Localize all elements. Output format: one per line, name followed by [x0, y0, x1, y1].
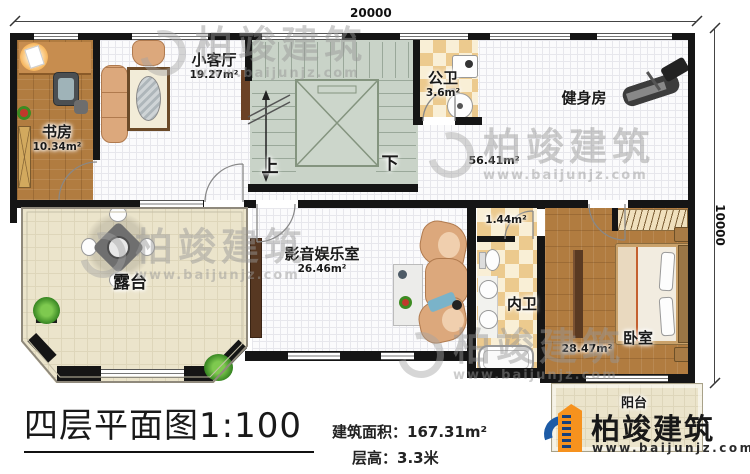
stair-flight-top — [252, 42, 416, 78]
stairs-up-text: 上 — [262, 157, 279, 177]
faucet-dot — [465, 60, 473, 68]
room-area: 3.6m² — [416, 87, 470, 99]
tv-cabinet — [250, 238, 262, 338]
window — [288, 352, 340, 360]
desk-chair — [74, 100, 88, 114]
toilet — [485, 249, 500, 271]
window — [381, 352, 414, 360]
living-sofa — [101, 65, 128, 143]
room-area: 10.34m² — [24, 141, 90, 153]
wall — [10, 33, 17, 223]
wall — [245, 351, 469, 361]
room-label-study: 书房 10.34m² — [24, 124, 90, 153]
dim-tick — [710, 378, 720, 388]
door-opening — [588, 200, 628, 208]
door-opening — [537, 209, 545, 236]
sheet-scale: 1:100 — [199, 406, 302, 446]
dimension-line-top — [15, 21, 697, 22]
room-label-media-room: 影音娱乐室 26.46m² — [270, 246, 374, 275]
wall — [477, 236, 515, 242]
basin-drain — [457, 103, 463, 109]
sofa-cushion — [442, 308, 464, 332]
dimension-width: 20000 — [350, 6, 392, 20]
room-name: 内卫 — [498, 296, 546, 313]
room-label-gym: 健身房 — [548, 90, 620, 107]
rug-medallion — [136, 76, 161, 121]
terrace-chair — [109, 206, 127, 222]
rug-decor — [398, 270, 407, 279]
title-underline — [24, 451, 314, 453]
dimension-depth: 10000 — [713, 204, 727, 246]
floor-height: 层高：3.3米 — [352, 447, 439, 468]
stairs-down-text: 下 — [382, 154, 399, 174]
room-area: 1.44m² — [478, 214, 534, 226]
building-area: 建筑面积：167.31m² — [332, 421, 487, 442]
room-label-public-bath: 公卫 3.6m² — [416, 70, 470, 99]
room-name: 健身房 — [548, 90, 620, 107]
window — [490, 33, 570, 40]
sofa-cushion — [438, 232, 460, 258]
room-label-inner-bath: 内卫 — [498, 296, 546, 313]
wall — [10, 200, 688, 208]
bedroom-dresser — [573, 250, 583, 338]
room-area: 19.27m² — [168, 69, 260, 81]
window — [400, 33, 468, 40]
room-label-terrace: 露台 — [100, 274, 160, 294]
sink — [479, 280, 498, 299]
wall — [15, 33, 695, 40]
terrace-plant — [33, 297, 60, 324]
room-name: 书房 — [24, 124, 90, 141]
floor-plan-page: 20000 10000 书房 10.34m² 小客厅 19.27m² 公卫 3.… — [0, 0, 750, 474]
wall — [612, 208, 618, 231]
wall — [467, 368, 545, 378]
area-label-bedroom: 28.47m² — [558, 343, 616, 356]
wall — [248, 184, 418, 192]
dim-tick — [710, 23, 720, 33]
room-area: 26.46m² — [270, 263, 374, 275]
window — [34, 33, 78, 40]
door-opening — [256, 200, 298, 208]
terrace-table-top — [107, 236, 130, 259]
sliding-door — [586, 375, 668, 382]
study-plant — [17, 106, 31, 120]
terrace-plant — [204, 354, 233, 381]
sheet-title: 四层平面图1:100 — [24, 398, 302, 447]
bed-blanket — [618, 247, 638, 341]
room-name: 影音娱乐室 — [270, 246, 374, 263]
person-head — [452, 300, 462, 310]
room-label-small-living: 小客厅 19.27m² — [168, 52, 260, 81]
room-area: 56.41m² — [462, 155, 526, 168]
stairs-down-label: 下 — [376, 155, 404, 175]
monitor-screen — [58, 78, 74, 100]
window — [132, 33, 208, 40]
sink — [479, 310, 498, 329]
door-opening — [423, 117, 455, 125]
floor-height-value: 3.3米 — [397, 449, 439, 467]
window — [597, 33, 672, 40]
room-name: 卧室 — [612, 330, 664, 347]
bay-window — [101, 369, 184, 378]
window — [262, 33, 342, 40]
room-name: 公卫 — [416, 70, 470, 87]
company-website: www.baijunjz.com — [592, 441, 750, 455]
sheet-title-text: 四层平面图 — [24, 406, 199, 446]
building-area-value: 167.31m² — [407, 423, 487, 441]
room-area: 28.47m² — [558, 343, 616, 356]
area-label-vestibule: 1.44m² — [478, 214, 534, 226]
floor-height-label: 层高： — [352, 449, 397, 467]
stairs-up-label: 上 — [256, 158, 284, 178]
terrace-post — [57, 366, 101, 381]
flower-bouquet — [399, 296, 412, 309]
room-name: 露台 — [113, 273, 147, 293]
building-area-label: 建筑面积： — [332, 423, 407, 441]
room-label-bedroom: 卧室 — [612, 330, 664, 347]
room-name: 小客厅 — [168, 52, 260, 69]
sliding-door — [140, 200, 203, 208]
door-opening — [204, 200, 244, 208]
wall — [93, 40, 100, 160]
logo-building-windows — [562, 415, 571, 449]
armchair — [132, 40, 165, 66]
company-logo-icon — [546, 404, 590, 458]
pillow — [659, 252, 676, 292]
wall — [688, 33, 695, 383]
area-label-gym: 56.41m² — [462, 155, 526, 168]
